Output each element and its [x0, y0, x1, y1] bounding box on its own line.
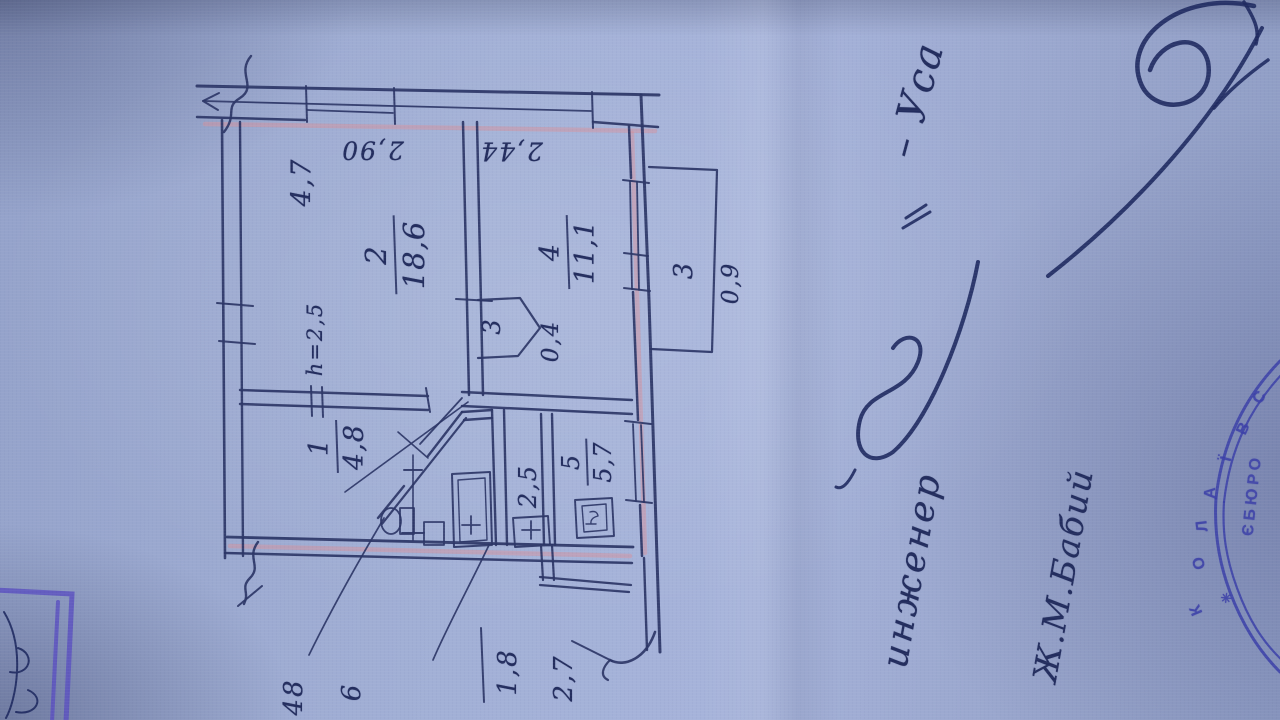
floor-plan-linework — [0, 0, 1280, 720]
room-5-number: 5 — [557, 454, 585, 470]
room-2-area: 18,6 — [397, 221, 431, 290]
room-label-1: 1 4,8 — [304, 424, 370, 470]
exterior-walls — [197, 86, 660, 652]
room-1-area: 4,8 — [339, 424, 370, 470]
pink-pencil-marks — [205, 124, 655, 556]
room-2-number: 2 — [359, 245, 393, 264]
room-label-2: 2 18,6 — [359, 221, 431, 290]
bathroom-fixtures — [381, 455, 492, 547]
dimension-room2-width: 4,7 — [287, 158, 318, 207]
dimension-room2-length: 2,90 — [340, 136, 404, 165]
dimension-kitchen-width: 2,5 — [514, 464, 542, 508]
dimension-room4-width: 2,44 — [479, 137, 543, 166]
balcony-number: 3 — [669, 261, 699, 280]
room-label-4: 4 11,1 — [535, 220, 601, 284]
bottom-label-d: 2,7 — [549, 654, 579, 701]
stamp-letter: А — [1202, 487, 1220, 499]
closet-number: 3 — [478, 317, 506, 334]
closet-area: 0,4 — [538, 320, 564, 363]
height-note: h=2,5 — [303, 302, 327, 377]
balcony-area: 0,9 — [718, 262, 744, 305]
room-label-5: 5 5,7 — [557, 441, 617, 482]
room-1-number: 1 — [304, 438, 335, 456]
bottom-label-c: 1,8 — [493, 648, 523, 695]
bottom-label-b: 6 — [337, 683, 367, 702]
room-4-area: 11,1 — [570, 220, 601, 284]
bottom-label-a: 48 — [279, 678, 309, 715]
window-kitchen — [625, 421, 652, 503]
photographed-floor-plan-document: 2 18,6 4 11,1 1 4,8 5 5,7 3 0,4 3 0,9 4,… — [0, 0, 1280, 720]
corner-stamp — [0, 590, 72, 720]
room-5-area: 5,7 — [589, 441, 617, 482]
stamp-letter: Л — [1193, 519, 1212, 532]
room-4-number: 4 — [535, 243, 566, 261]
break-marks — [224, 56, 655, 680]
round-stamp-star: ✳ — [1218, 588, 1235, 604]
